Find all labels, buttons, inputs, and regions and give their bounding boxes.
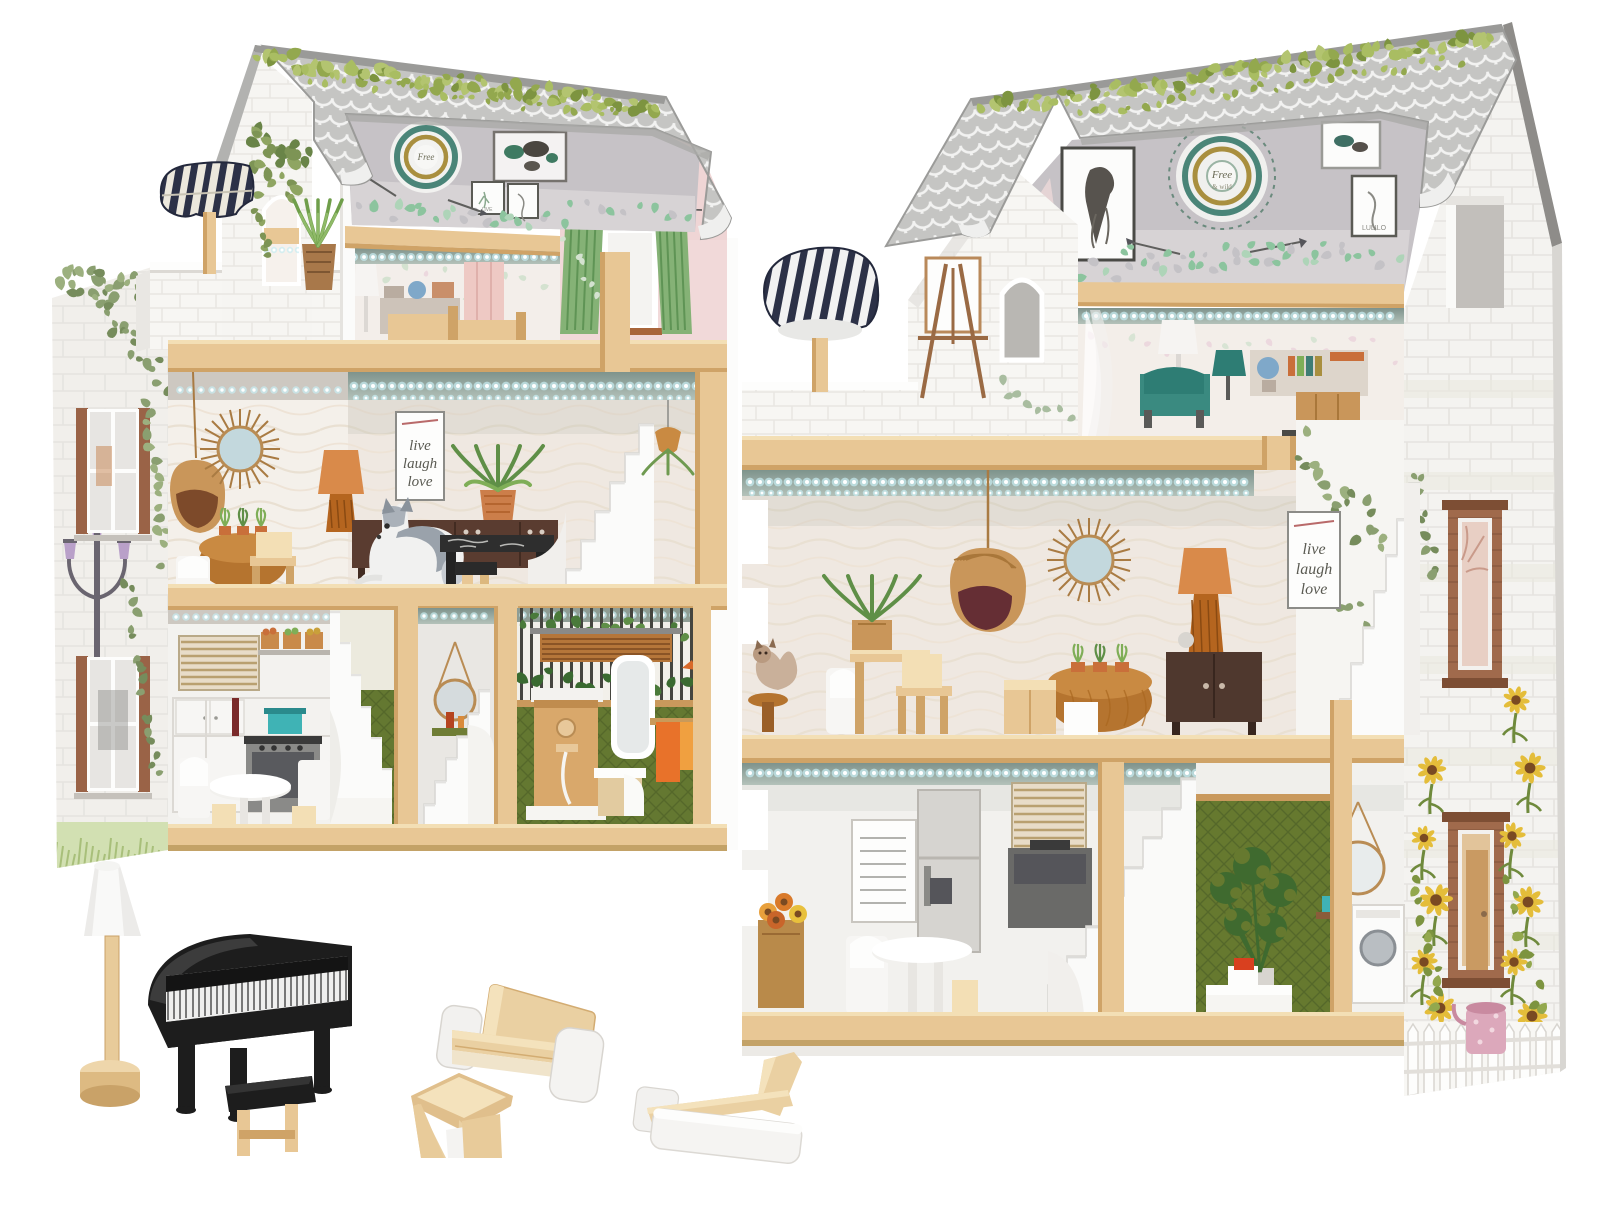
svg-text:& wild: & wild (1212, 183, 1232, 191)
svg-text:Free: Free (1211, 169, 1232, 181)
svg-text:LIVE: LIVE (482, 207, 494, 213)
svg-text:laugh: laugh (1296, 561, 1332, 578)
svg-text:love: love (408, 474, 433, 490)
svg-text:live: live (1302, 541, 1325, 558)
svg-text:live: live (409, 438, 431, 454)
svg-text:love: love (1301, 581, 1328, 598)
svg-text:laugh: laugh (403, 456, 437, 472)
svg-text:LULILO: LULILO (1362, 225, 1387, 232)
svg-text:Free: Free (417, 152, 435, 162)
